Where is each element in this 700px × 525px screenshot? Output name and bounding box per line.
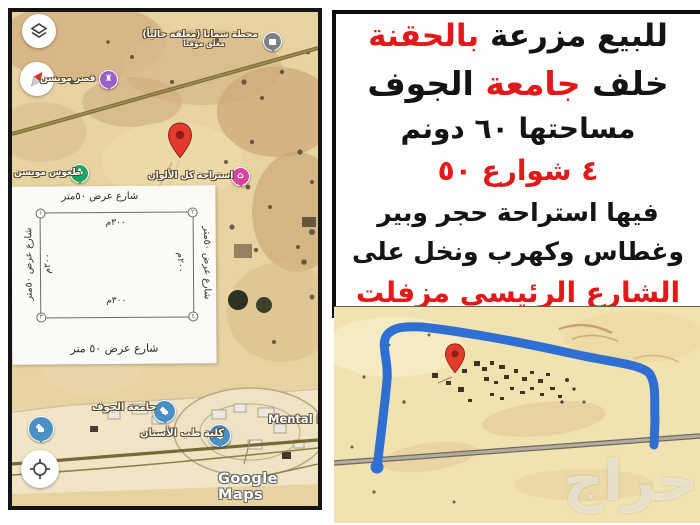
college-poi-pin[interactable]	[28, 416, 54, 442]
sketch-right-street-label: شارع عرض ٥٠متر	[201, 218, 213, 308]
google-maps-watermark: Google Maps	[218, 471, 318, 503]
layers-button[interactable]	[22, 14, 56, 48]
layers-icon	[29, 21, 49, 41]
property-location-pin[interactable]	[167, 122, 193, 159]
listing-image: { "colors": { "ad_red": "#e01a1a", "ad_b…	[0, 0, 700, 525]
station-poi-pin[interactable]	[263, 32, 282, 51]
ad-line-1: للبيع مزرعة بالحقنة	[340, 20, 696, 53]
sketch-top-dim: ٣٠٠م	[106, 218, 126, 228]
station-icon	[269, 39, 276, 45]
sketch-left-dim: ٢٠٠م	[43, 253, 53, 273]
palace-poi-pin[interactable]: ♜	[99, 70, 118, 89]
plot-location-pin[interactable]	[444, 343, 466, 374]
crosshair-icon	[29, 458, 51, 480]
university-label[interactable]: جامعة الجوف	[92, 402, 157, 414]
resthouse-icon: ⌂	[237, 172, 243, 181]
sketch-bottom-dim: ٣٠٠م	[106, 296, 126, 306]
ad-line-3: مساحتها ٦٠ دونم	[340, 114, 696, 144]
ad-text-panel: للبيع مزرعة بالحقنة خلف جامعة الجوف مساح…	[332, 10, 700, 318]
corner-marker: ٣	[36, 312, 46, 322]
ad-line-7: الشارع الرئيسي مزفلت	[340, 278, 696, 308]
ad-line-5: فيها استراحة حجر وبير	[340, 199, 696, 226]
dunes-label[interactable]: طعوس مويسن	[14, 168, 81, 178]
corner-marker: ١	[36, 208, 46, 218]
sketch-top-street-label: شارع عرض ٥٠متر	[61, 191, 138, 203]
satellite-map-panel[interactable]: محطة سمانا (مغلقه حالياً) مغلق مؤقتاً ♜ …	[8, 8, 322, 510]
ad-line-2: خلف جامعة الجوف	[340, 66, 696, 102]
station-label[interactable]: محطة سمانا (مغلقه حالياً) مغلق مؤقتاً	[150, 30, 258, 49]
my-location-button[interactable]	[21, 450, 59, 488]
corner-marker: ٢	[188, 207, 198, 217]
dentistry-label[interactable]: كلية طب الأسنان	[140, 428, 224, 440]
resthouse-label[interactable]: استراحة كل الألوان	[148, 171, 233, 181]
corner-marker: ٤	[188, 311, 198, 321]
ad-line-4: ٤ شوارع ٥٠	[340, 156, 696, 186]
plot-sketch-inset: شارع عرض ٥٠متر ١ ٢ ٣ ٤ ٣٠٠م ٣٠٠م شارع عر…	[11, 185, 216, 364]
haraj-watermark: حراج	[563, 449, 698, 514]
mental-hospital-label[interactable]: Mental H	[268, 412, 322, 426]
palace-label[interactable]: قصر مويسن	[40, 74, 95, 84]
ad-line-6: وغطاس وكهرب ونخل على	[340, 238, 696, 265]
sketch-bottom-street-label: شارع عرض ٥٠ متر	[70, 342, 158, 356]
sketch-right-dim: ٢٠٠م	[175, 252, 185, 272]
plot-outline-map-panel[interactable]: حراج	[334, 306, 700, 523]
sketch-left-street-label: شارع عرض ٥٠متر	[23, 219, 35, 309]
resthouse-poi-pin[interactable]: ⌂	[231, 167, 250, 186]
palace-icon: ♜	[104, 75, 112, 84]
